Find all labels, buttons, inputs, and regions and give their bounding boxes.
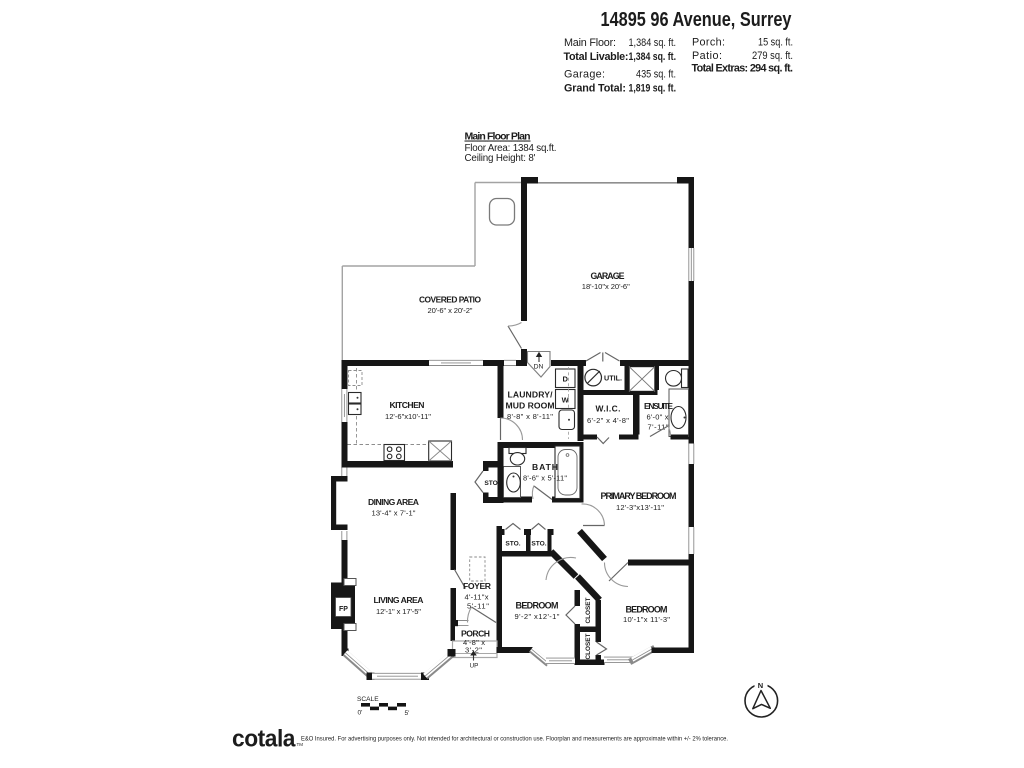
svg-text:0': 0': [358, 710, 363, 717]
svg-text:1,384 sq. ft.: 1,384 sq. ft.: [629, 51, 677, 63]
svg-text:Main Floor:: Main Floor:: [564, 37, 616, 49]
svg-text:PRIMARY BEDROOM: PRIMARY BEDROOM: [601, 491, 677, 501]
svg-text:10'-1"x 11'-3": 10'-1"x 11'-3": [623, 615, 670, 624]
svg-text:FP: FP: [339, 606, 348, 613]
svg-text:14895 96 Avenue, Surrey: 14895 96 Avenue, Surrey: [601, 8, 792, 31]
svg-text:D: D: [562, 375, 568, 384]
svg-text:Patio:: Patio:: [692, 50, 722, 62]
svg-text:TM: TM: [297, 742, 304, 747]
svg-text:18'-10"x 20'-6": 18'-10"x 20'-6": [582, 282, 630, 291]
svg-text:1,384 sq. ft.: 1,384 sq. ft.: [629, 37, 677, 49]
svg-text:Main Floor Plan: Main Floor Plan: [465, 131, 531, 143]
svg-text:E&O Insured. For advertising p: E&O Insured. For advertising purposes on…: [301, 736, 728, 743]
svg-text:PORCH: PORCH: [461, 629, 490, 639]
svg-text:KITCHEN: KITCHEN: [390, 400, 425, 410]
svg-text:5': 5': [405, 710, 410, 717]
svg-text:12'-6"x10'-11": 12'-6"x10'-11": [385, 412, 431, 421]
svg-text:FOYER: FOYER: [463, 581, 492, 591]
svg-text:LIVING AREA: LIVING AREA: [374, 595, 424, 605]
svg-text:ENSUITE: ENSUITE: [644, 401, 673, 411]
svg-text:CLOSET: CLOSET: [585, 597, 592, 623]
svg-text:Garage:: Garage:: [564, 69, 605, 81]
svg-text:6'-2" x 4'-8": 6'-2" x 4'-8": [587, 416, 629, 425]
svg-text:12'-1" x 17'-5": 12'-1" x 17'-5": [376, 607, 421, 616]
svg-text:Total Extras: 294 sq. ft.: Total Extras: 294 sq. ft.: [692, 63, 794, 75]
svg-text:W.I.C.: W.I.C.: [596, 404, 621, 414]
svg-text:Grand Total:: Grand Total:: [564, 83, 626, 95]
svg-text:STO.: STO.: [531, 541, 546, 548]
svg-text:GARAGE: GARAGE: [591, 271, 625, 281]
svg-text:1,819 sq. ft.: 1,819 sq. ft.: [629, 83, 677, 95]
svg-text:279 sq. ft.: 279 sq. ft.: [752, 50, 793, 62]
svg-text:BEDROOM: BEDROOM: [516, 601, 559, 611]
svg-text:8'-8" x 8'-11": 8'-8" x 8'-11": [507, 412, 553, 421]
svg-text:BATH: BATH: [532, 462, 558, 472]
svg-text:STO.: STO.: [505, 541, 520, 548]
svg-text:COVERED PATIO: COVERED PATIO: [419, 295, 481, 305]
svg-text:SCALE: SCALE: [357, 696, 379, 703]
svg-text:UTIL.: UTIL.: [604, 374, 622, 383]
svg-text:13'-4" x 7'-1": 13'-4" x 7'-1": [372, 509, 416, 518]
svg-text:Total Livable:: Total Livable:: [564, 51, 629, 63]
svg-text:20'-6" x 20'-2": 20'-6" x 20'-2": [428, 306, 473, 315]
svg-text:MUD ROOM: MUD ROOM: [506, 401, 555, 411]
svg-text:8'-6" x 5'-11": 8'-6" x 5'-11": [523, 474, 567, 483]
svg-text:4'-11"x: 4'-11"x: [465, 593, 489, 602]
svg-text:9'-2" x12'-1": 9'-2" x12'-1": [515, 612, 560, 621]
svg-text:N: N: [758, 681, 763, 690]
svg-text:CLOSET: CLOSET: [585, 633, 592, 659]
svg-text:DINING AREA: DINING AREA: [368, 497, 419, 507]
svg-text:UP: UP: [470, 663, 479, 670]
svg-text:BEDROOM: BEDROOM: [626, 605, 668, 615]
svg-text:12'-3"x13'-11": 12'-3"x13'-11": [616, 503, 664, 512]
svg-text:DN: DN: [534, 364, 544, 371]
svg-text:Ceiling Height: 8': Ceiling Height: 8': [465, 153, 536, 164]
svg-text:435 sq. ft.: 435 sq. ft.: [636, 69, 676, 81]
svg-text:LAUNDRY/: LAUNDRY/: [508, 390, 554, 400]
svg-text:cotala: cotala: [232, 726, 296, 753]
svg-text:6'-0" x: 6'-0" x: [647, 413, 669, 422]
svg-text:STO.: STO.: [484, 480, 499, 487]
svg-text:15 sq. ft.: 15 sq. ft.: [758, 37, 793, 49]
svg-text:Porch:: Porch:: [692, 37, 725, 49]
